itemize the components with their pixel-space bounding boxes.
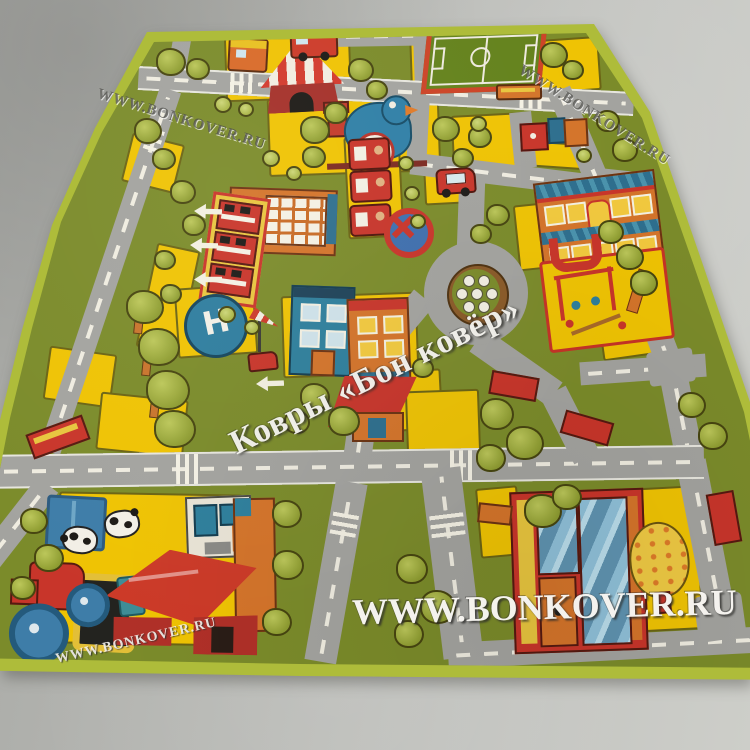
crosswalk — [429, 510, 466, 538]
truck-stripe — [216, 245, 250, 255]
school-window — [631, 193, 653, 215]
bench-slat — [501, 88, 535, 93]
tree-icon — [678, 392, 706, 418]
road-centerline — [0, 460, 696, 474]
tree-icon — [186, 58, 210, 80]
tree-icon — [470, 224, 492, 244]
tree-icon — [630, 270, 658, 296]
crosswalk — [330, 510, 360, 538]
tree-icon — [476, 444, 506, 472]
flower-petal — [478, 275, 490, 287]
annex-facade — [352, 412, 404, 442]
train-beak — [405, 105, 418, 116]
tree-icon — [396, 554, 428, 584]
cottage-window — [193, 504, 218, 537]
tree-icon — [552, 484, 582, 510]
pump-figure — [375, 211, 384, 220]
truck-window — [231, 270, 242, 278]
red-car — [435, 167, 477, 196]
window — [300, 303, 321, 322]
flower-petal — [456, 288, 468, 300]
bush-icon — [214, 96, 232, 113]
school-window — [609, 196, 631, 218]
swing-seat — [591, 296, 601, 306]
tree-icon — [272, 550, 304, 580]
cow-spot — [83, 537, 92, 545]
door — [310, 350, 335, 377]
bench-slat — [33, 423, 78, 444]
tree-icon — [366, 80, 388, 100]
truck-stripe — [221, 214, 255, 224]
tree-icon — [562, 60, 584, 80]
silo-top — [235, 498, 251, 516]
roof — [349, 299, 407, 311]
tree-icon — [348, 58, 374, 82]
window — [383, 315, 404, 334]
tree-icon — [154, 250, 176, 270]
annex-door — [368, 418, 386, 438]
tree-icon — [10, 576, 36, 600]
no-entry-sign — [384, 208, 434, 258]
tree-icon — [146, 370, 190, 410]
house-door — [519, 122, 548, 151]
school-window — [544, 204, 566, 226]
truck-bays — [198, 191, 271, 308]
bush-icon — [286, 166, 302, 181]
fire-truck — [211, 231, 259, 267]
truck-window — [220, 236, 231, 244]
bush-icon — [576, 148, 592, 163]
truck-window — [215, 267, 226, 275]
barn-roof — [106, 549, 257, 628]
pump-screen — [356, 178, 369, 193]
truck-window — [235, 238, 246, 246]
bench — [477, 502, 513, 525]
tree-icon — [432, 116, 460, 142]
truck-window — [296, 34, 308, 44]
tree-icon — [262, 608, 292, 636]
bus-window — [236, 49, 246, 58]
bush-icon — [262, 150, 280, 167]
orange-bus — [227, 37, 269, 73]
door-knob — [530, 133, 536, 139]
tree-icon — [182, 214, 206, 236]
pump-figure — [374, 145, 383, 154]
flower-center — [471, 288, 483, 300]
tree-icon — [154, 410, 196, 448]
bush-icon — [410, 214, 426, 229]
tree-icon — [156, 48, 186, 76]
bush-icon — [238, 102, 254, 117]
small-red-car — [247, 350, 279, 372]
tree-icon — [480, 398, 514, 430]
tree-icon — [152, 148, 176, 170]
tree-icon — [126, 290, 164, 324]
window — [325, 330, 346, 349]
photo-stage: H — [0, 0, 750, 750]
tractor-wheel-small — [65, 582, 111, 628]
truck-window — [240, 206, 251, 214]
station-windows — [264, 195, 328, 247]
tree-icon — [324, 102, 348, 124]
cow-head — [130, 508, 139, 517]
tree-icon — [160, 284, 182, 304]
truck-window — [224, 204, 235, 212]
tree-icon — [506, 426, 544, 460]
tent-flag — [296, 29, 308, 41]
tree-icon — [134, 118, 162, 144]
fuel-pump — [347, 137, 391, 171]
red-truck — [289, 27, 338, 59]
yellow-zone — [405, 389, 481, 456]
flower-petal — [463, 275, 475, 287]
seesaw-end — [618, 321, 627, 330]
tree-icon — [170, 180, 196, 204]
tree-icon — [452, 148, 474, 168]
road-junction — [646, 347, 696, 387]
window — [299, 329, 320, 348]
bush-icon — [398, 156, 414, 171]
fuel-pump — [349, 169, 393, 203]
crosswalk — [230, 73, 255, 94]
small-house — [517, 114, 585, 151]
tree-icon — [138, 328, 180, 366]
tree-icon — [486, 204, 510, 226]
pump-screen — [354, 146, 367, 161]
tree-icon — [34, 544, 64, 572]
cow-head — [60, 534, 69, 543]
tree-icon — [272, 500, 302, 528]
car-window — [445, 172, 466, 184]
cow-spot — [109, 516, 119, 525]
helipad-letter: H — [184, 297, 249, 346]
road-arrow — [256, 376, 285, 392]
seesaw-end — [565, 319, 574, 328]
tree-icon — [20, 508, 48, 534]
pump-screen — [355, 212, 368, 227]
road-bottom-left — [304, 480, 367, 665]
wheel-hub — [29, 623, 39, 633]
bush-icon — [470, 116, 487, 132]
school-window — [566, 202, 588, 224]
window — [357, 316, 378, 335]
bush-icon — [404, 186, 420, 201]
swing-seat — [571, 300, 581, 310]
bus-roof — [230, 39, 266, 49]
swing-post — [607, 266, 616, 310]
tree-icon — [302, 146, 326, 168]
goal-box — [431, 47, 445, 70]
roof — [293, 287, 353, 299]
fire-truck — [215, 199, 263, 235]
pump-figure — [376, 177, 385, 186]
window — [326, 304, 347, 323]
cow-spot — [124, 521, 133, 529]
tree-icon — [698, 422, 728, 450]
seesaw — [571, 313, 621, 335]
tree-icon — [598, 220, 624, 244]
cow-spot — [69, 532, 79, 541]
wheel-hub — [80, 597, 88, 605]
bush-icon — [218, 306, 236, 323]
house-side — [563, 118, 588, 147]
station-teal-strip — [326, 194, 338, 244]
bush-icon — [244, 320, 260, 335]
tree-icon — [616, 244, 644, 270]
helipad: H — [184, 294, 248, 358]
